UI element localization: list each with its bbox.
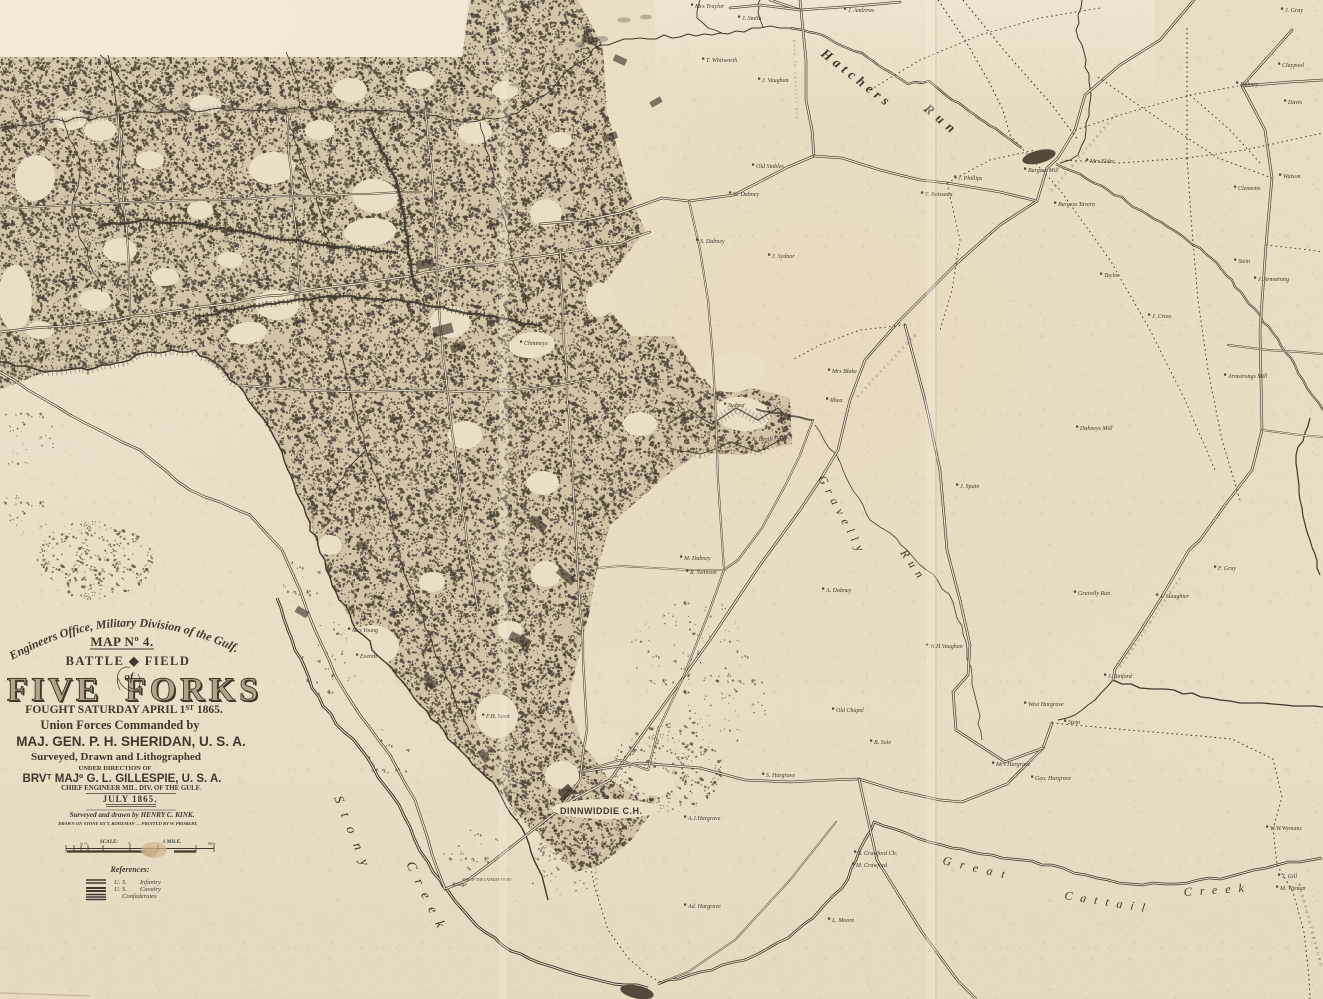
svg-text:F. Gray: F. Gray [1217,566,1237,572]
svg-text:Old Stables: Old Stables [756,164,784,170]
svg-text:FIVE: FIVE [7,672,102,709]
svg-text:DINNWIDDIE C.H.: DINNWIDDIE C.H. [560,806,643,816]
svg-text:S. Hargrave: S. Hargrave [766,773,795,779]
svg-text:W. Dabney: W. Dabney [733,192,759,198]
svg-text:Dabney: Dabney [1239,82,1259,88]
svg-text:Confederates: Confederates [122,893,157,900]
svg-text:J. Spain: J. Spain [960,484,979,490]
svg-text:Everett: Everett [359,654,377,660]
svg-text:Mrs Elder: Mrs Elder [1089,159,1115,165]
svg-text:CHIEF ENGINEER MIL. DIV. OF T: CHIEF ENGINEER MIL. DIV. OF THE GULF. [61,785,201,792]
svg-text:Taylor: Taylor [1104,273,1120,279]
svg-text:Gravelly Run: Gravelly Run [1078,591,1110,597]
svg-text:Mrs Blake: Mrs Blake [831,369,857,375]
svg-text:References:: References: [109,865,149,874]
svg-text:Geo. Hargrave: Geo. Hargrave [1035,776,1071,782]
svg-text:¾: ¾ [128,841,131,846]
svg-text:A. Dabney: A. Dabney [825,588,852,594]
svg-text:Burgess Tavern: Burgess Tavern [1058,202,1095,208]
svg-text:W.W.Wymans: W.W.Wymans [1270,826,1302,832]
svg-text:Cavalry: Cavalry [140,886,161,893]
svg-text:Sydnor: Sydnor [728,403,746,409]
svg-text:R. Swinson: R. Swinson [689,570,717,576]
svg-text:UNDER DIRECTION OF: UNDER DIRECTION OF [79,765,152,772]
svg-text:¼ ½: ¼ ½ [80,841,87,846]
svg-text:BRVᵀ MAJº G. L. GILLESPIE, U.: BRVᵀ MAJº G. L. GILLESPIE, U. S. A. [23,773,222,785]
svg-text:DRAWN ON STONE BY T. BOHEMAN —: DRAWN ON STONE BY T. BOHEMAN — PRINTED B… [57,821,197,826]
svg-text:Surveyed and drawn by HENRY C.: Surveyed and drawn by HENRY C. KINK. [70,811,195,819]
svg-text:Mrs Hargrave: Mrs Hargrave [995,762,1031,768]
svg-text:J. Armstrong: J. Armstrong [1258,277,1289,283]
svg-text:M. Crawford: M. Crawford [855,862,888,869]
svg-text:A.J.Hargrave: A.J.Hargrave [687,816,721,822]
svg-text:S. Dabney: S. Dabney [700,239,725,245]
svg-text:U. S.: U. S. [114,879,127,886]
svg-text:Mrs Traylor: Mrs Traylor [694,4,725,10]
svg-text:Clements: Clements [1238,186,1261,192]
svg-text:Stein: Stein [1238,259,1250,265]
svg-text:West Hargrave: West Hargrave [1028,702,1064,708]
svg-text:of: of [124,671,135,683]
svg-text:R. Bevill: R. Bevill [751,437,773,443]
svg-text:S. Crawford Ch.: S. Crawford Ch. [858,850,897,857]
svg-text:Old Chapel: Old Chapel [836,708,864,714]
svg-text:Armstrongs Mill: Armstrongs Mill [1227,374,1268,380]
svg-text:B. Sole: B. Sole [874,740,891,746]
svg-text:Infantry: Infantry [139,879,161,886]
svg-text:L. Moore: L. Moore [831,918,854,924]
svg-text:FORKS: FORKS [125,672,262,709]
svg-text:Union Forces Commanded by: Union Forces Commanded by [40,718,200,732]
svg-text:SCALE:: SCALE: [100,839,118,845]
svg-text:Surveyed, Drawn and Lithograph: Surveyed, Drawn and Lithographed [31,751,201,763]
svg-text:1 MILE.: 1 MILE. [163,839,181,845]
svg-text:MAP Nº 4.: MAP Nº 4. [90,634,153,649]
svg-text:J. Phillips: J. Phillips [958,176,983,182]
svg-text:Bridge: Bridge [452,882,468,888]
svg-text:Davis: Davis [1287,100,1303,106]
svg-text:JULY 1865.: JULY 1865. [103,794,158,804]
svg-text:Watson: Watson [1283,174,1300,180]
svg-text:J. Gill: J. Gill [1282,874,1297,880]
svg-text:Ad. Hargrave: Ad. Hargrave [687,904,721,910]
svg-text:Claypool: Claypool [1282,63,1304,69]
svg-text:J. Andrews: J. Andrews [848,8,875,14]
svg-text:Mile: Mile [207,841,216,846]
svg-text:T. Whitworth: T. Whitworth [706,58,737,64]
svg-text:Burgess Mill: Burgess Mill [1028,168,1059,174]
svg-text:Dabneys Mill: Dabneys Mill [1079,426,1113,432]
svg-text:FOUGHT SATURDAY APRIL 1ST 1865: FOUGHT SATURDAY APRIL 1ST 1865. [25,704,223,716]
svg-text:J. Smith: J. Smith [742,16,761,22]
svg-text:M. Dabney: M. Dabney [683,556,711,562]
svg-text:BATTLE ◆ FIELD: BATTLE ◆ FIELD [66,654,191,668]
svg-text:MAJ. GEN. P. H. SHERIDAN, U. S: MAJ. GEN. P. H. SHERIDAN, U. S. A. [16,734,246,749]
svg-text:Chimneys: Chimneys [524,341,548,347]
svg-text:J. Gray: J. Gray [1285,8,1303,14]
svg-text:J. Vaughan: J. Vaughan [762,78,789,84]
svg-text:Rhea: Rhea [829,398,842,404]
svg-text:J. Sydnor: J. Sydnor [772,254,795,260]
svg-text:Stein: Stein [1068,720,1080,726]
svg-text:Mrs Young: Mrs Young [351,628,378,634]
svg-text:U. S.: U. S. [114,886,127,893]
svg-text:J. Binford: J. Binford [1108,673,1133,680]
svg-text:J. Cross: J. Cross [1152,314,1172,320]
